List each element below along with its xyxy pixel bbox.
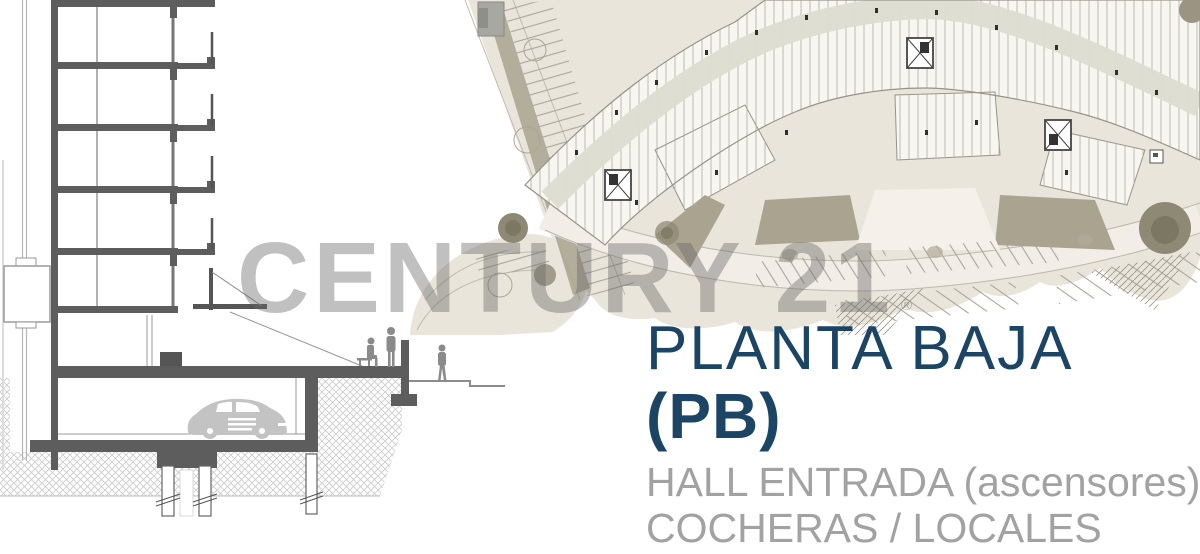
page-title: PLANTA BAJA	[646, 318, 1200, 380]
basement-slab	[30, 440, 318, 452]
balconies	[170, 7, 215, 266]
plan-kiosk	[1150, 150, 1163, 163]
ground-line	[409, 381, 505, 386]
floor-code: (PB)	[646, 384, 1200, 448]
feature-line-1: HALL ENTRADA (ascensores)	[646, 462, 1200, 503]
person-sitting	[357, 338, 378, 368]
floor-slabs	[51, 0, 215, 313]
person-walking	[438, 345, 447, 382]
registered-trademark-icon: ®	[901, 297, 912, 314]
terrace-slab	[51, 366, 408, 378]
century21-watermark: CENTURY 21	[237, 228, 894, 328]
left-wall	[51, 0, 58, 470]
feature-line-2: COCHERAS / LOCALES	[646, 508, 1200, 549]
title-block: PLANTA BAJA (PB) HALL ENTRADA (ascensore…	[646, 318, 1200, 554]
earth-hatch-right	[318, 378, 402, 496]
brochure-page: CENTURY 21 ® PLANTA BAJA (PB) HALL ENTRA…	[0, 0, 1200, 554]
elevator-cab	[4, 258, 50, 328]
retaining-wall	[401, 340, 409, 396]
car	[188, 399, 287, 439]
